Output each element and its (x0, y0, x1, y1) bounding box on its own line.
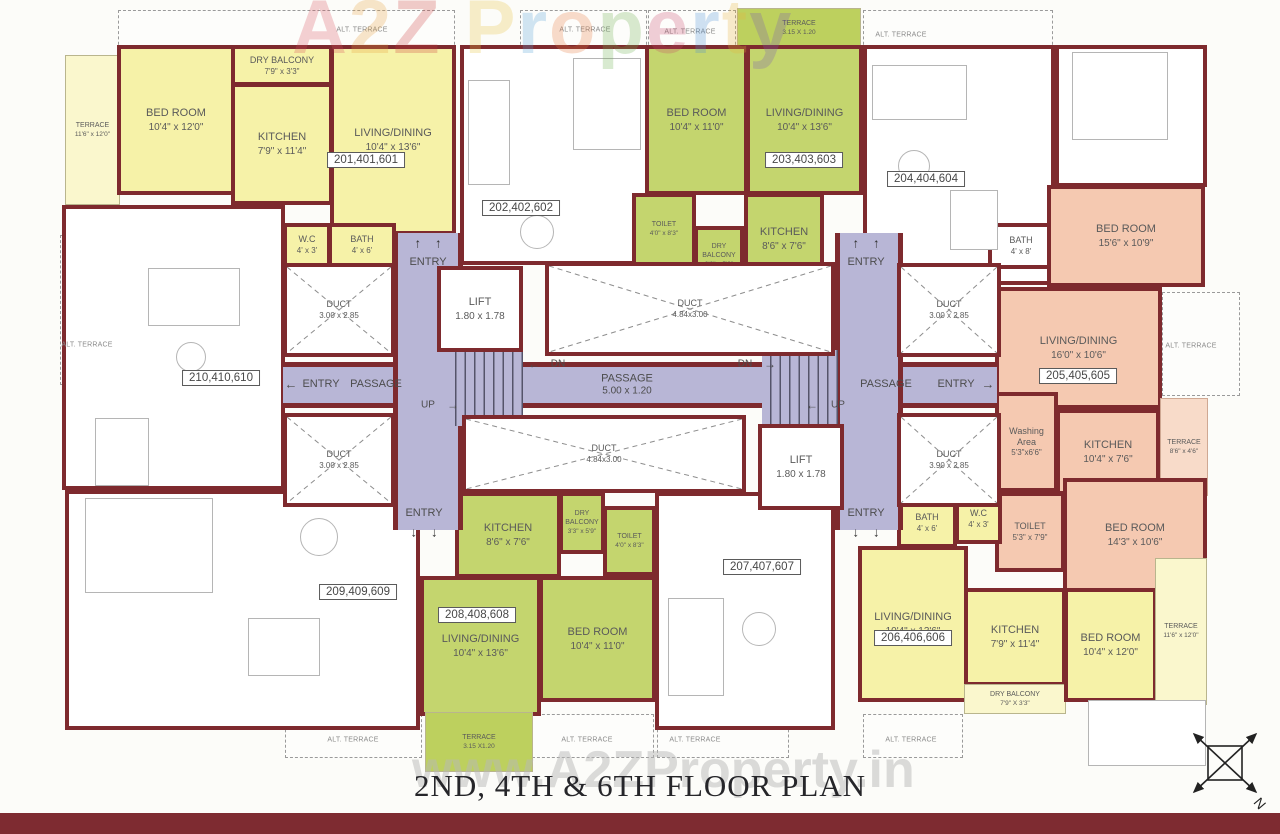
entry-arrow-left: ← (285, 377, 298, 392)
dn-arrow-right-stair: → (764, 357, 776, 371)
unit-number-203: 203,403,603 (765, 152, 843, 168)
room-dry-balcony-206: DRY BALCONY 7'9" X 3'3" (964, 684, 1066, 714)
alt-terrace-strip (118, 10, 455, 50)
entry-arrows-top-right: ↑↑ (846, 236, 887, 251)
unit-number-205: 205,405,605 (1039, 368, 1117, 384)
alt-terrace-label: ALT. TERRACE (561, 737, 612, 744)
furniture-table (300, 518, 338, 556)
room-living-208: LIVING/DINING 10'4" x 13'6" (420, 576, 541, 716)
room-bath-201: BATH 4' x 6' (328, 223, 396, 267)
furniture-table (742, 612, 776, 646)
duct-top-left: DUCT 3.00 x 2.85 (283, 263, 395, 357)
passage-label-center: PASSAGE 5.00 x 1.20 (601, 372, 653, 397)
dn-label-left-stair: DN (551, 359, 565, 370)
room-terrace-206: TERRACE 11'6" x 12'0" (1155, 558, 1207, 705)
entry-arrows-bottom-left: ↓↓ (404, 525, 445, 540)
room-terrace-201: TERRACE 11'6" x 12'0" (65, 55, 120, 205)
room-bedroom-201: BED ROOM 10'4" x 12'0" (117, 45, 235, 195)
room-kitchen-208: KITCHEN 8'6" x 7'6" (455, 492, 561, 578)
unit-number-204: 204,404,604 (887, 171, 965, 187)
entry-label-left: ENTRY (302, 378, 339, 390)
room-terrace-208: TERRACE 3.15 X1.20 (425, 712, 533, 772)
alt-terrace-label: ALT. TERRACE (327, 737, 378, 744)
alt-terrace-label: ALT. TERRACE (875, 32, 926, 39)
room-bedroom-206: BED ROOM 10'4" x 12'0" (1064, 588, 1157, 702)
lift-left: LIFT 1.80 x 1.78 (437, 266, 523, 352)
up-label-left-stair: UP (421, 400, 435, 411)
room-living-201: LIVING/DINING 10'4" x 13'6" (330, 45, 456, 235)
furniture-sofa (248, 618, 320, 676)
entry-arrows-bottom-right: ↓↓ (846, 525, 887, 540)
alt-terrace-strip (863, 10, 1053, 50)
room-terrace-203: TERRACE 3.15 X 1.20 (737, 8, 861, 48)
furniture-table (176, 342, 206, 372)
room-toilet-203: TOILET 4'0" x 8'3" (632, 193, 696, 266)
unit-number-209: 209,409,609 (319, 584, 397, 600)
alt-terrace-label: ALT. TERRACE (336, 27, 387, 34)
furniture-bed (85, 498, 213, 593)
passage-label-left: PASSAGE (350, 378, 402, 390)
entry-label-top-right: ENTRY (847, 256, 884, 268)
lift-right: LIFT 1.80 x 1.78 (758, 424, 844, 510)
unit-number-208: 208,408,608 (438, 607, 516, 623)
compass-north-label: N (1251, 794, 1270, 810)
furniture-dining (95, 418, 149, 486)
passage-label-right: PASSAGE (860, 378, 912, 390)
furniture-bed (1072, 52, 1168, 140)
up-label-right-stair: UP (831, 400, 845, 411)
room-dry-balcony-208: DRY BALCONY 3'3" x 5'9" (559, 492, 605, 554)
dn-label-right-stair: DN (738, 359, 752, 370)
entry-label-bottom-right: ENTRY (847, 507, 884, 519)
unit-number-206: 206,406,606 (874, 630, 952, 646)
room-washing-area-205: Washing Area 5'3"x6'6" (995, 392, 1058, 492)
room-living-203: LIVING/DINING 10'4" x 13'6" (746, 45, 863, 195)
entry-label-top-left: ENTRY (409, 256, 446, 268)
entry-label-bottom-left: ENTRY (405, 507, 442, 519)
duct-bottom-right: DUCT 3.90 x 2.85 (897, 413, 1001, 507)
unit-number-201: 201,401,601 (327, 152, 405, 168)
alt-terrace-label: ALT. TERRACE (559, 27, 610, 34)
unit-number-210: 210,410,610 (182, 370, 260, 386)
furniture-bed (573, 58, 641, 150)
furniture-sofa (148, 268, 240, 326)
alt-terrace-label: ALT. TERRACE (885, 737, 936, 744)
floor-plan-canvas: TERRACE 11'6" x 12'0" BED ROOM 10'4" x 1… (0, 0, 1280, 834)
alt-terrace-label: ALT. TERRACE (664, 29, 715, 36)
floor-plan-title: 2ND, 4TH & 6TH FLOOR PLAN (414, 768, 866, 804)
duct-center-bottom: DUCT 4.84x3.00 (462, 415, 746, 493)
room-living-205: LIVING/DINING 16'0" x 10'6" (995, 287, 1162, 409)
up-arrow-right-stair: ← (806, 398, 818, 412)
unit-number-207: 207,407,607 (723, 559, 801, 575)
alt-terrace-label: ALT. TERRACE (669, 737, 720, 744)
entry-label-right: ENTRY (937, 378, 974, 390)
furniture-table (950, 190, 998, 250)
furniture-sofa (668, 598, 724, 696)
dn-arrow-left-stair: ← (528, 357, 540, 371)
room-dry-balcony-201: DRY BALCONY 7'9" x 3'3" (231, 45, 333, 86)
room-bedroom-203: BED ROOM 10'4" x 11'0" (645, 45, 748, 195)
duct-bottom-left: DUCT 3.00 x 2.85 (283, 413, 395, 507)
room-living-206: LIVING/DINING 10'4" x 13'6" (858, 546, 968, 702)
room-kitchen-201: KITCHEN 7'9" x 11'4" (231, 83, 333, 205)
furniture-sofa (872, 65, 967, 120)
compass-icon: N (1180, 724, 1272, 810)
duct-top-right: DUCT 3.00 x 2.85 (897, 263, 1001, 357)
alt-terrace-label: ALT. TERRACE (1165, 343, 1216, 350)
alt-terrace-label: ALT. TERRACE (61, 342, 112, 349)
entry-arrow-right: → (982, 377, 995, 392)
furniture-table (520, 215, 554, 249)
room-toilet-205: TOILET 5'3" x 7'9" (995, 492, 1065, 572)
room-toilet-208: TOILET 4'0" x 8'3" (603, 506, 656, 576)
room-kitchen-206: KITCHEN 7'9" x 11'4" (964, 588, 1066, 686)
entry-arrows-top-left: ↑↑ (408, 236, 449, 251)
room-bedroom-208: BED ROOM 10'4" x 11'0" (539, 576, 656, 702)
up-arrow-left-stair: → (447, 398, 459, 412)
unit-number-202: 202,402,602 (482, 200, 560, 216)
duct-center-top: DUCT 4.84x3.00 (545, 262, 835, 356)
furniture-sofa (468, 80, 510, 185)
footer-bar (0, 813, 1280, 834)
room-wc-201: W.C 4' x 3' (283, 223, 331, 267)
room-bedroom-top-205: BED ROOM 15'6" x 10'9" (1047, 185, 1205, 287)
